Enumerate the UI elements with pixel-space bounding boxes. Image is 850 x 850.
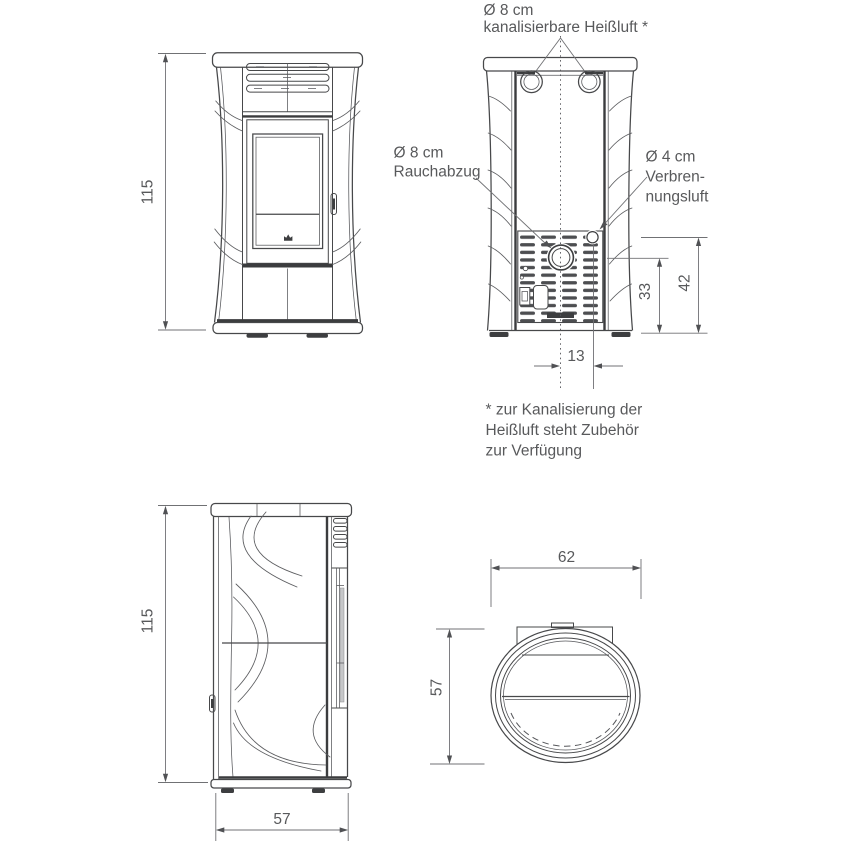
flue-size-label: Ø 8 cm <box>394 145 444 162</box>
front-foot-left <box>247 334 269 338</box>
brand-logo-icon <box>284 234 292 240</box>
arrow-right-icon <box>552 363 561 368</box>
front-foot-right <box>307 334 329 338</box>
side-grille-slats <box>334 519 348 548</box>
power-socket <box>534 286 549 310</box>
arrow-right-icon <box>633 565 642 570</box>
combustion-air-callout: Ø 4 cm Verbren- nungsluft <box>600 149 710 230</box>
top-depth-dimension: 57 <box>429 629 485 764</box>
duct-callout: Ø 8 cm kanalisierbare Heißluft * <box>484 2 649 71</box>
flue-name-label: Rauchabzug <box>394 164 481 181</box>
side-foot-right <box>312 789 325 794</box>
side-top-cap <box>211 504 352 517</box>
air-leader-line <box>604 177 647 225</box>
arrow-down-icon <box>163 321 168 330</box>
door-glass-outer <box>253 134 323 249</box>
arrow-up-icon <box>447 629 452 638</box>
glass-edge <box>340 588 344 702</box>
dim-top-depth: 57 <box>429 679 446 696</box>
front-right-side-outer <box>352 67 360 322</box>
side-tile-decor <box>234 512 331 771</box>
footnote: * zur Kanalisierung der Heißluft steht Z… <box>486 402 643 460</box>
dim-air-height: 42 <box>677 274 694 291</box>
dim-flue-height: 33 <box>637 283 654 300</box>
dim-top-width: 62 <box>558 549 575 566</box>
arrow-down-icon <box>657 325 662 334</box>
arrow-up-icon <box>657 258 662 267</box>
back-foot-left <box>490 332 509 337</box>
door-glass-inner <box>256 137 319 245</box>
arrow-down-icon <box>696 325 701 334</box>
dim-front-height: 115 <box>140 180 157 205</box>
footnote-line-2: Heißluft steht Zubehör <box>486 422 639 439</box>
arrow-left-icon <box>216 827 225 832</box>
arrow-down-icon <box>447 756 452 765</box>
front-left-side-outer <box>215 67 223 322</box>
side-view <box>210 504 352 794</box>
top-outline <box>491 629 640 763</box>
top-view <box>491 623 640 763</box>
duct-name-label: kanalisierbare Heißluft * <box>484 19 649 36</box>
footnote-line-1: * zur Kanalisierung der <box>486 402 643 419</box>
arrow-up-icon <box>696 238 701 247</box>
dimension-drawing: 115 <box>0 0 850 850</box>
side-depth-dimension: 57 <box>216 793 348 841</box>
power-switch <box>520 288 530 306</box>
side-base-cap <box>211 780 351 789</box>
air-size-label: Ø 4 cm <box>646 149 696 166</box>
front-view <box>213 53 363 338</box>
duct-size-label: Ø 8 cm <box>484 2 534 19</box>
arrow-left-icon <box>594 363 603 368</box>
side-door-profile <box>332 568 348 708</box>
side-height-dimension: 115 <box>140 506 209 783</box>
drawing-canvas: 115 <box>0 0 850 850</box>
verbrennungsluft-port <box>587 232 598 243</box>
arrow-down-icon <box>163 774 168 783</box>
back-top-cap <box>484 58 638 72</box>
dim-air-offset: 13 <box>567 348 584 365</box>
front-door <box>247 120 337 263</box>
front-height-dimension: 115 <box>140 54 207 331</box>
back-foot-right <box>612 332 631 337</box>
arrow-right-icon <box>340 827 349 832</box>
arrow-left-icon <box>491 565 500 570</box>
front-air-grille <box>247 63 330 112</box>
arrow-up-icon <box>163 54 168 63</box>
side-foot-left <box>221 789 234 794</box>
dim-side-depth: 57 <box>273 811 290 828</box>
arrow-up-icon <box>163 506 168 515</box>
air-name-label-2: nungsluft <box>646 189 710 206</box>
front-base-cap <box>213 323 363 334</box>
air-name-label-1: Verbren- <box>646 169 705 186</box>
dim-side-height: 115 <box>140 609 157 634</box>
footnote-line-3: zur Verfügung <box>486 443 583 460</box>
top-width-dimension: 62 <box>491 549 641 607</box>
